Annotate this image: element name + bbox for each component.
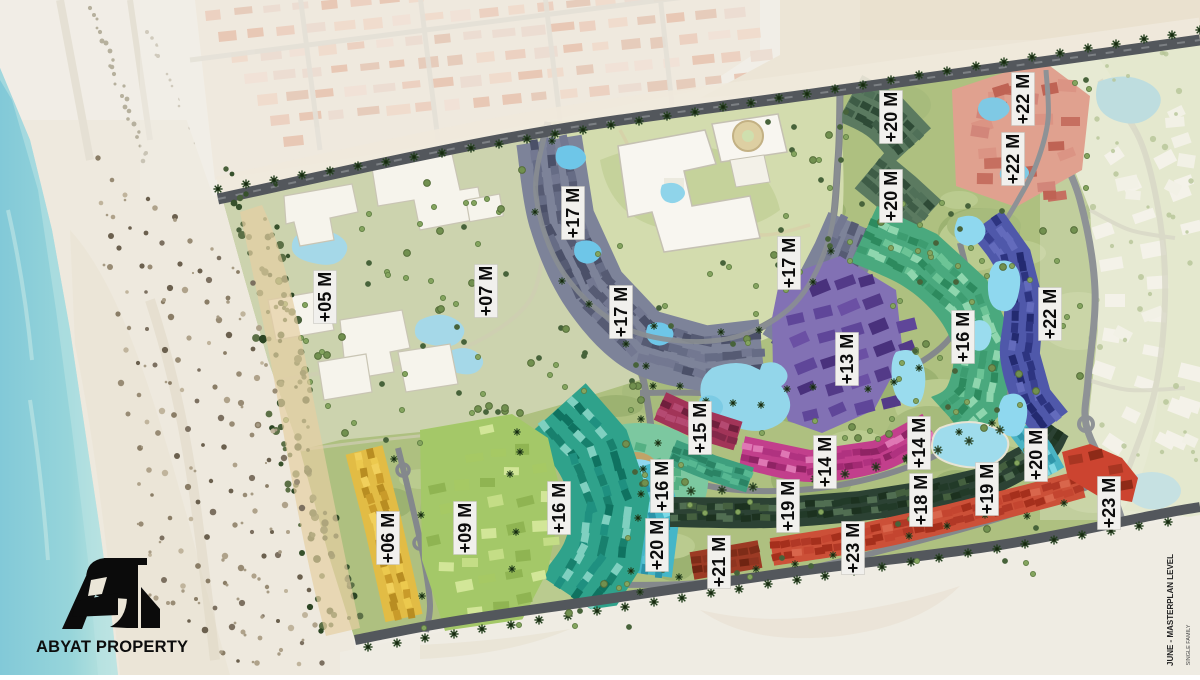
- svg-text:+16 M: +16 M: [652, 461, 672, 512]
- svg-text:+18 M: +18 M: [911, 475, 931, 526]
- svg-text:ABYAT PROPERTY: ABYAT PROPERTY: [36, 638, 188, 656]
- svg-text:+20 M: +20 M: [647, 520, 667, 571]
- svg-text:+16 M: +16 M: [549, 483, 569, 534]
- svg-text:+06 M: +06 M: [378, 513, 398, 564]
- svg-text:+14 M: +14 M: [909, 418, 929, 469]
- svg-text:+13 M: +13 M: [837, 334, 857, 385]
- svg-text:+20 M: +20 M: [1026, 430, 1046, 481]
- svg-text:+19 M: +19 M: [977, 464, 997, 515]
- svg-text:+22 M: +22 M: [1040, 289, 1060, 340]
- svg-text:+09 M: +09 M: [455, 503, 475, 554]
- svg-text:+05 M: +05 M: [315, 272, 335, 323]
- svg-text:+17 M: +17 M: [611, 287, 631, 338]
- svg-text:+22 M: +22 M: [1003, 134, 1023, 185]
- svg-text:+21 M: +21 M: [709, 537, 729, 588]
- svg-text:+23 M: +23 M: [843, 523, 863, 574]
- svg-text:+22 M: +22 M: [1013, 74, 1033, 125]
- svg-text:+14 M: +14 M: [815, 437, 835, 488]
- svg-text:+19 M: +19 M: [778, 481, 798, 532]
- svg-text:+23 M: +23 M: [1099, 478, 1119, 529]
- svg-text:+16 M: +16 M: [953, 312, 973, 363]
- svg-text:JUNE - MASTERPLAN LEVEL: JUNE - MASTERPLAN LEVEL: [1166, 554, 1175, 666]
- svg-text:+20 M: +20 M: [881, 171, 901, 222]
- svg-text:+20 M: +20 M: [881, 92, 901, 143]
- svg-text:+07 M: +07 M: [476, 266, 496, 317]
- svg-text:SINGLE FAMILY: SINGLE FAMILY: [1186, 624, 1192, 665]
- svg-text:+15 M: +15 M: [690, 403, 710, 454]
- svg-text:+17 M: +17 M: [563, 188, 583, 239]
- svg-text:+17 M: +17 M: [779, 238, 799, 289]
